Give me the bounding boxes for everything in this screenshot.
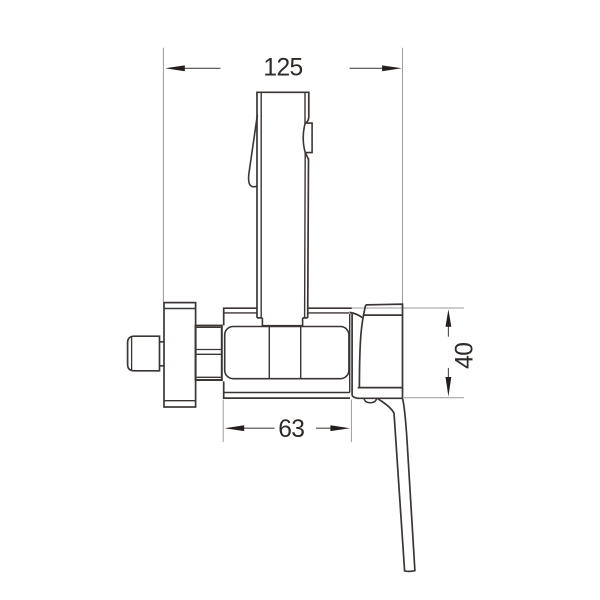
svg-text:125: 125	[263, 55, 302, 82]
svg-text:63: 63	[278, 416, 304, 443]
svg-text:40: 40	[452, 343, 479, 369]
